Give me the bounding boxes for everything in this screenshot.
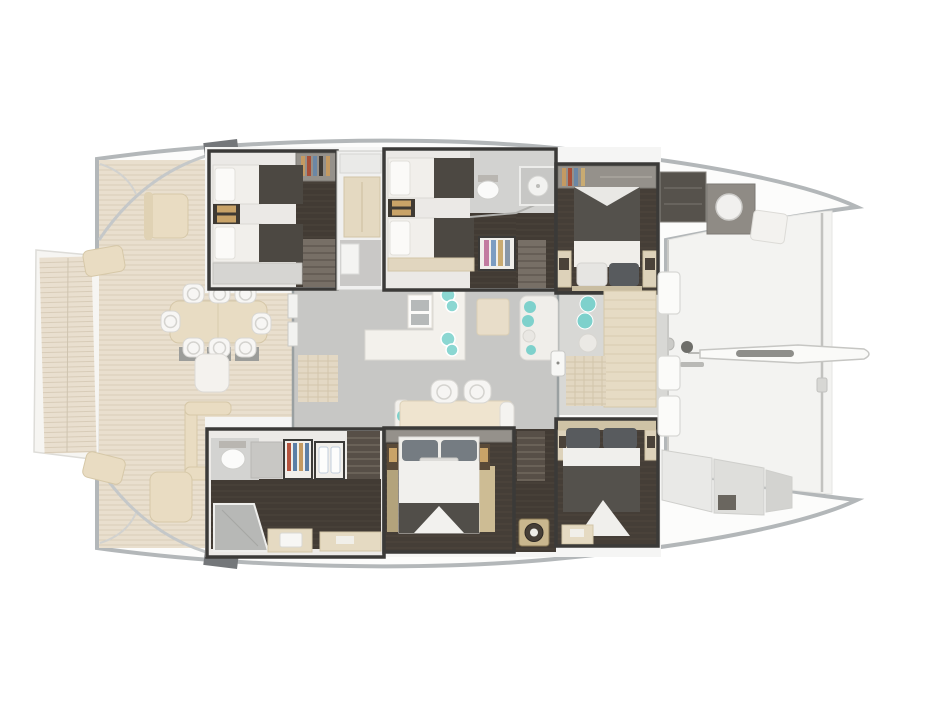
saloon-rug bbox=[477, 299, 509, 335]
forepeak-berth-cushion bbox=[750, 210, 788, 244]
cabin2-hanging-clothes-4 bbox=[505, 240, 510, 266]
forepeak-port-locker bbox=[660, 172, 706, 222]
foredeck-hatch bbox=[658, 272, 680, 314]
cabin5-pillow bbox=[566, 428, 600, 449]
cabin3-sidetable-tray-2 bbox=[645, 258, 655, 270]
galley-sink-2 bbox=[446, 300, 458, 312]
bathroom1-cabinet bbox=[340, 154, 381, 173]
cabin1-stairs bbox=[303, 239, 337, 287]
dinette-corner-seat bbox=[500, 402, 514, 430]
cabin3-headboard bbox=[572, 286, 642, 291]
cabin1-hanging-clothes-5 bbox=[326, 156, 330, 176]
forepeak-stbd-hatch bbox=[718, 495, 736, 510]
cabin3-pillow-light bbox=[577, 263, 607, 286]
cabin5-sidetable-tray-2 bbox=[647, 436, 655, 448]
stbd-midgap-stairs bbox=[517, 431, 545, 481]
cabin1-bed1-duvet bbox=[259, 165, 303, 204]
chaise-pillow-white bbox=[523, 330, 535, 342]
bathroom2-stairs bbox=[347, 431, 380, 479]
foredeck-hatch-3 bbox=[658, 396, 680, 436]
cabin3-hanging-clothes bbox=[562, 168, 566, 186]
cabin1-bench bbox=[213, 263, 302, 284]
cockpit-bench-port-back bbox=[144, 192, 153, 240]
bathroom1-vanity bbox=[341, 244, 359, 274]
cabin1-hanging-clothes-2 bbox=[307, 156, 311, 176]
cabin4-rail-left bbox=[387, 470, 398, 532]
cabin2-bed1-duvet bbox=[434, 158, 474, 198]
cabin4-duvet-white bbox=[399, 461, 479, 507]
forepeak-stbd-locker-3 bbox=[766, 470, 792, 512]
bathroom2-sideboard-item bbox=[336, 536, 354, 544]
forepeak-porthole bbox=[716, 194, 742, 220]
cabin5-sheet bbox=[563, 448, 640, 468]
cockpit-settee-arm-top bbox=[185, 402, 231, 415]
cabin4-nightstand-tray-2 bbox=[480, 448, 488, 462]
cabin2-hanging-clothes bbox=[484, 240, 489, 266]
windlass bbox=[681, 341, 693, 353]
foredeck-hatch-2 bbox=[658, 356, 680, 390]
cabin5-pillow-2 bbox=[603, 428, 637, 449]
bathroom2-hanging-clothes-2 bbox=[293, 443, 297, 471]
fwd-cockpit-pouf-white bbox=[579, 334, 597, 352]
chaise-cushion-teal bbox=[524, 301, 536, 313]
cabin2-stairs bbox=[518, 240, 546, 288]
bathroom2-toilet-tank bbox=[219, 441, 246, 448]
fwd-door-handle bbox=[557, 362, 560, 365]
emblem-center bbox=[530, 529, 538, 537]
cabin2-nightstand-tray-2 bbox=[392, 210, 411, 216]
aft-door-panel bbox=[288, 294, 298, 318]
chaise-cushion-teal-3 bbox=[526, 345, 536, 355]
cabin1-bed2-duvet bbox=[259, 224, 303, 262]
galley-sink-4 bbox=[446, 344, 458, 356]
cabin2-bed2-duvet bbox=[434, 218, 474, 258]
cabin3-pillow-dark bbox=[609, 263, 639, 286]
cabin1-bed1-pillow bbox=[215, 168, 235, 201]
crossbeam-tab bbox=[817, 378, 827, 392]
cooktop-burner bbox=[411, 300, 429, 311]
bathroom2-counter bbox=[251, 442, 282, 478]
bathroom2-hanging-clothes-3 bbox=[299, 443, 303, 471]
cockpit-bench-port bbox=[148, 194, 188, 238]
cabin5-sidetable-tray bbox=[559, 436, 566, 448]
bathroom2-robe-2 bbox=[331, 447, 340, 473]
saloon-textured-rug bbox=[298, 355, 338, 402]
cabin2-bed2-pillow bbox=[390, 221, 410, 255]
bathroom2-robe bbox=[319, 447, 328, 473]
cabin2-toilet bbox=[477, 181, 499, 199]
cabin1-hanging-clothes-4 bbox=[319, 156, 323, 176]
cabin2-nightstand-tray bbox=[392, 201, 411, 207]
cabin1-nightstand-tray bbox=[217, 206, 236, 213]
bathroom2-sink bbox=[280, 533, 302, 547]
cockpit-coffee-table bbox=[195, 354, 229, 392]
cabin1-bed2-pillow bbox=[215, 227, 235, 259]
bathroom2-hanging-clothes bbox=[287, 443, 291, 471]
bowsprit-pad bbox=[736, 350, 794, 357]
fwd-cockpit-pouf-teal bbox=[580, 296, 596, 312]
cabin3-sidetable-tray bbox=[559, 258, 569, 270]
cabin1-hanging-clothes-3 bbox=[313, 156, 317, 176]
cabin3-hanging-clothes-2 bbox=[568, 168, 572, 186]
fwd-cockpit-sunpad-2 bbox=[566, 356, 606, 406]
chaise-cushion-teal-2 bbox=[522, 315, 534, 327]
cabin2-hanging-clothes-2 bbox=[491, 240, 496, 266]
cabin3-hanging-clothes-4 bbox=[581, 168, 585, 186]
bathroom2-hanging-clothes-4 bbox=[305, 443, 309, 471]
cabin5-dresser-item bbox=[570, 529, 584, 537]
cabin2-hanging-clothes-3 bbox=[498, 240, 503, 266]
floorplan-page bbox=[0, 0, 936, 702]
cabin3-hanging-clothes-3 bbox=[574, 168, 578, 186]
cabin4-nightstand-tray bbox=[389, 448, 397, 462]
cooktop-burner-2 bbox=[411, 314, 429, 325]
fwd-cockpit-sunpad bbox=[604, 291, 656, 407]
cabin4-rail-right bbox=[477, 466, 495, 532]
floorplan-canvas bbox=[0, 0, 936, 702]
bathroom2-toilet bbox=[221, 449, 245, 469]
cabin2-shower-drain bbox=[536, 184, 540, 188]
aft-door-panel-2 bbox=[288, 322, 298, 346]
anchor-roller-bar bbox=[680, 362, 704, 367]
cockpit-sunpad-starboard bbox=[150, 472, 192, 522]
fwd-cockpit-pouf-teal-2 bbox=[577, 313, 593, 329]
cabin2-bench bbox=[388, 258, 474, 271]
cabin2-bed1-pillow bbox=[390, 161, 410, 195]
cabin1-nightstand-tray-2 bbox=[217, 216, 236, 223]
